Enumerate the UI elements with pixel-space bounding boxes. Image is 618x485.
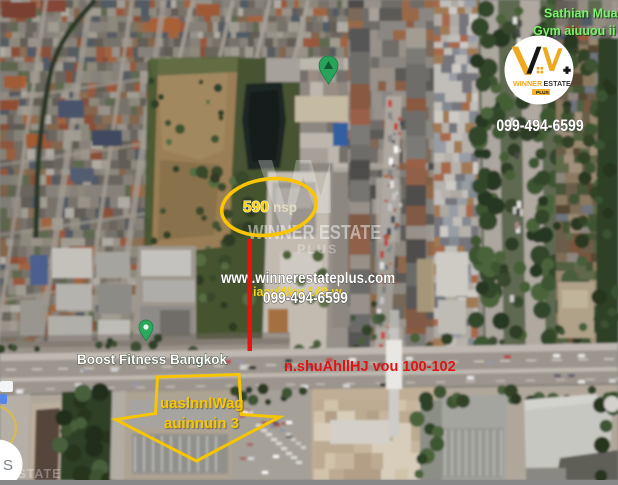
svg-text:099-494-6599: 099-494-6599 xyxy=(263,290,348,307)
svg-text:WINNER: WINNER xyxy=(513,79,543,88)
svg-text:PLUS: PLUS xyxy=(536,90,550,96)
svg-text:auinnuin 3: auinnuin 3 xyxy=(164,415,239,432)
svg-text:590: 590 xyxy=(243,199,269,216)
svg-text:Boost Fitness Bangkok: Boost Fitness Bangkok xyxy=(77,352,228,367)
svg-text:Gym aiuuou ii: Gym aiuuou ii xyxy=(533,24,616,38)
svg-text:n.shuAhllHJ vou 100-102: n.shuAhllHJ vou 100-102 xyxy=(284,359,456,375)
svg-text:Sathian Mua: Sathian Mua xyxy=(544,7,618,21)
svg-text:099-494-6599: 099-494-6599 xyxy=(496,117,583,135)
svg-text:WINNER ESTATE: WINNER ESTATE xyxy=(248,220,381,243)
svg-text:S: S xyxy=(3,457,13,474)
svg-text:PLUS: PLUS xyxy=(297,243,338,257)
svg-text:nsp: nsp xyxy=(273,200,297,215)
svg-text:uaslnnlWag: uaslnnlWag xyxy=(160,395,244,412)
svg-text:ESTATE: ESTATE xyxy=(544,79,571,88)
